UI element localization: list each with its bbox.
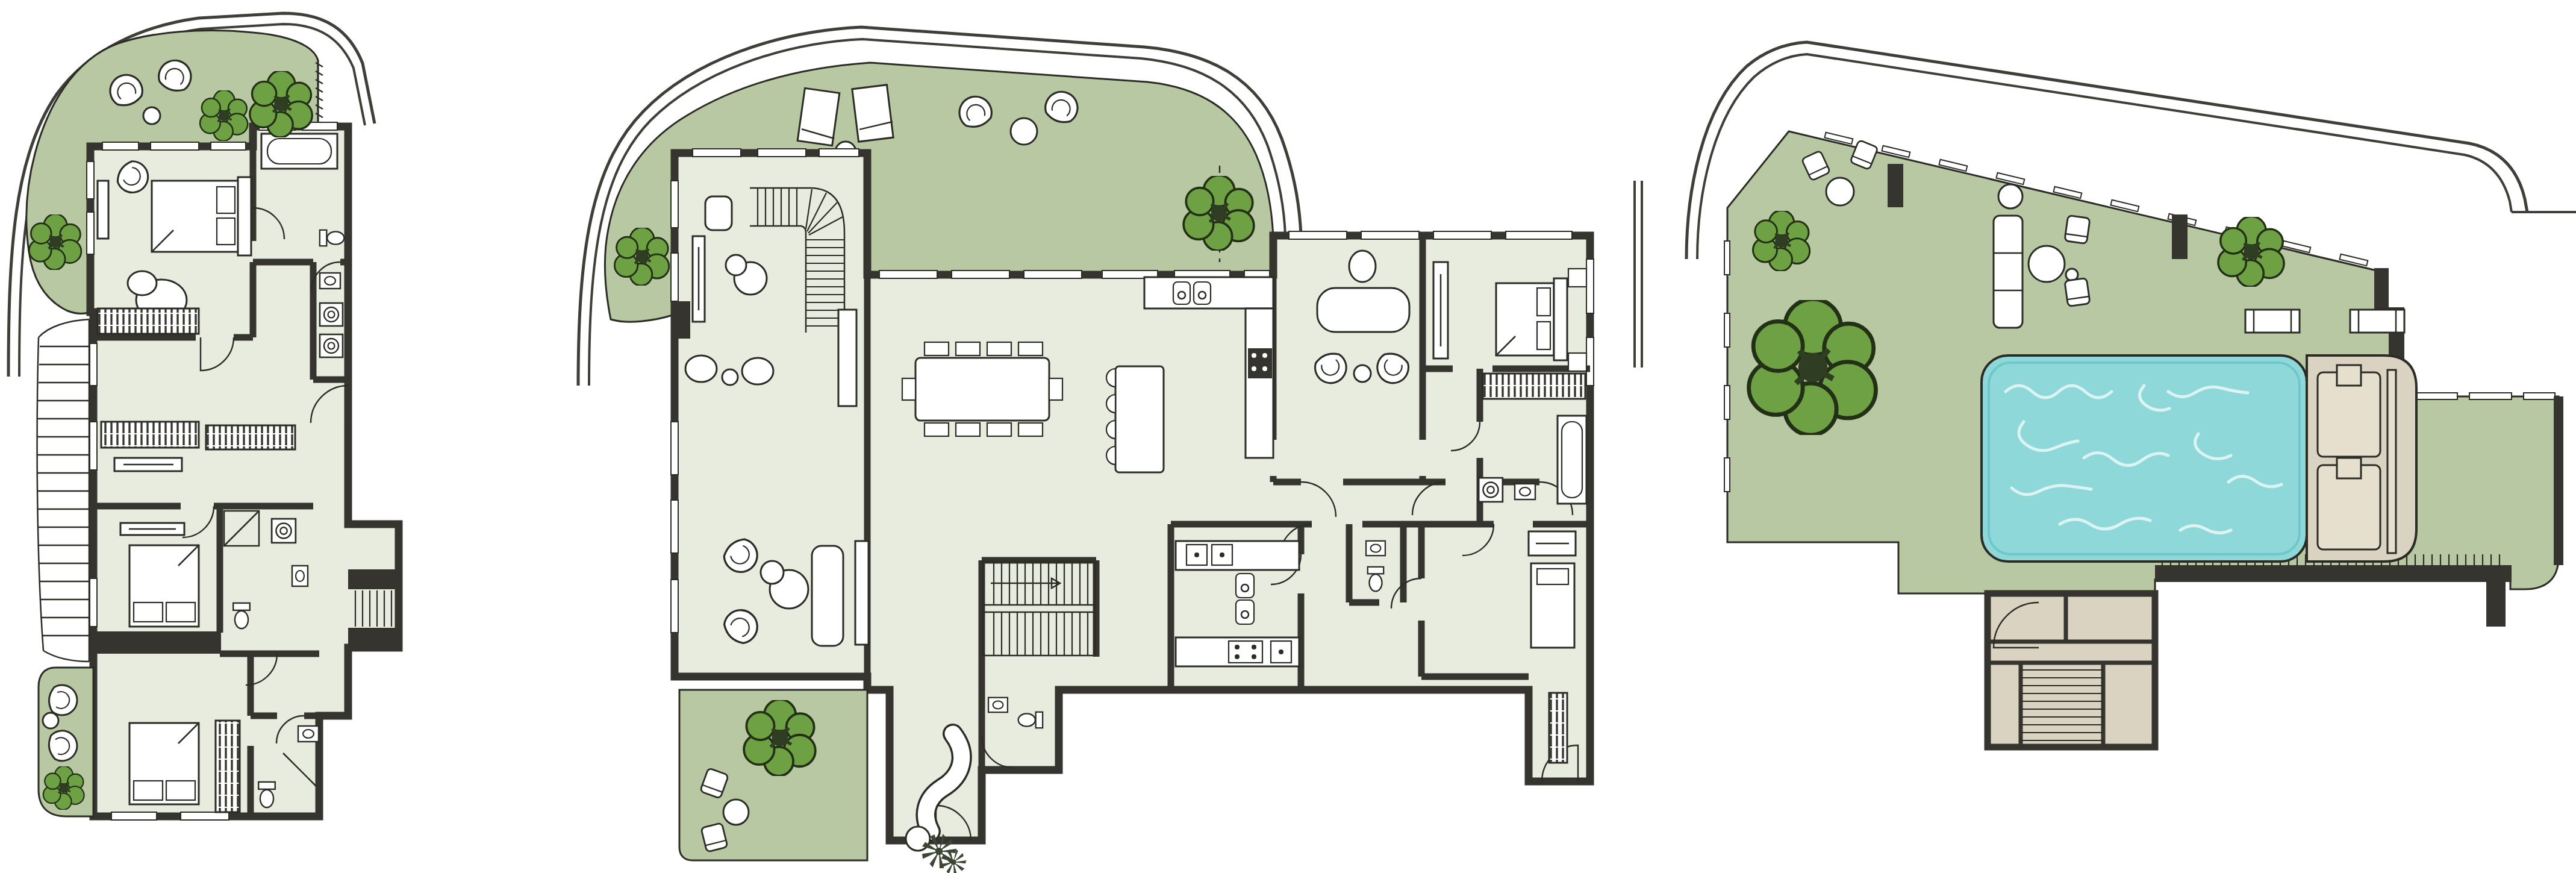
washer-icon bbox=[320, 334, 343, 357]
balcony-icon bbox=[39, 668, 93, 816]
square-chair-icon bbox=[2065, 278, 2090, 306]
lounge-chair-icon bbox=[685, 355, 717, 382]
desk-icon bbox=[1317, 288, 1409, 332]
washbasin-icon bbox=[292, 566, 308, 586]
wardrobe-hatch-icon bbox=[1483, 374, 1585, 399]
sofa-icon bbox=[812, 546, 843, 646]
kitchen-counter-icon bbox=[1246, 308, 1273, 458]
planter-icon bbox=[2172, 214, 2188, 259]
round-table-icon bbox=[43, 713, 58, 728]
washer-icon bbox=[320, 303, 343, 326]
wardrobe-hatch-icon bbox=[98, 308, 199, 334]
washbasin-icon bbox=[1515, 484, 1535, 499]
washbasin-icon bbox=[988, 698, 1008, 712]
wardrobe-hatch-icon bbox=[1549, 693, 1567, 763]
plan-roof-terrace bbox=[1686, 42, 2576, 747]
round-table-icon bbox=[1011, 118, 1037, 145]
round-table-icon bbox=[2029, 246, 2065, 282]
wardrobe-hatch-icon bbox=[101, 422, 199, 448]
maid-room bbox=[1529, 531, 1576, 648]
round-table-icon bbox=[1354, 365, 1371, 382]
floor-plan-sheet bbox=[0, 0, 2576, 873]
planter-icon bbox=[1888, 164, 1903, 207]
plan-living-level bbox=[578, 27, 1642, 873]
pool-deck-icon bbox=[2307, 355, 2416, 562]
toilet-icon bbox=[1368, 567, 1383, 591]
cooktop-icon bbox=[1248, 348, 1272, 378]
lounge-chair-icon bbox=[742, 358, 773, 384]
balcony-icon bbox=[679, 690, 867, 860]
service-stair-icon bbox=[37, 319, 89, 662]
washbasin-icon bbox=[1366, 541, 1385, 555]
shelf-icon bbox=[838, 310, 856, 406]
outdoor-sofa-icon bbox=[1994, 216, 2022, 328]
floor-plans-image bbox=[0, 0, 2576, 873]
round-table-icon bbox=[143, 107, 160, 124]
toilet-icon bbox=[258, 782, 275, 807]
washer-icon bbox=[272, 519, 296, 543]
stair-enclosure-icon bbox=[1988, 593, 2155, 747]
round-chair-icon bbox=[1998, 184, 2022, 208]
wardrobe-hatch-icon bbox=[216, 721, 240, 812]
wardrobe-hatch-icon bbox=[206, 425, 295, 449]
round-table-icon bbox=[1826, 178, 1854, 205]
square-chair-icon bbox=[2065, 215, 2090, 243]
kitchen-island-icon bbox=[1115, 366, 1164, 472]
office-chair-icon bbox=[1349, 251, 1376, 282]
plan-bedroom-level bbox=[8, 13, 399, 820]
washer-icon bbox=[1479, 478, 1503, 502]
swimming-pool-icon bbox=[1982, 355, 2307, 562]
washbasin-icon bbox=[320, 273, 340, 289]
toilet-icon bbox=[320, 230, 344, 246]
bedroom-3 bbox=[129, 721, 240, 812]
console-icon bbox=[855, 541, 869, 645]
round-table-icon bbox=[723, 799, 749, 825]
toilet-icon bbox=[233, 603, 250, 628]
cooktop-icon bbox=[1229, 641, 1291, 663]
side-table-icon bbox=[705, 196, 732, 230]
washbasin-icon bbox=[298, 726, 319, 742]
tv-sideboard-icon bbox=[98, 181, 108, 239]
toilet-icon bbox=[1018, 712, 1043, 728]
